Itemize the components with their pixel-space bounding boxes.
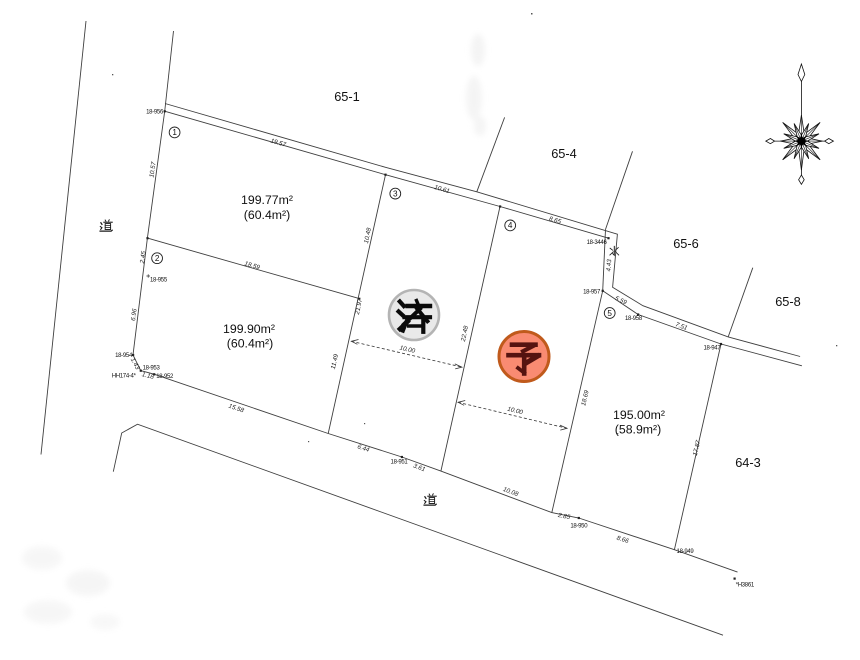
svg-text:(58.9m²): (58.9m²): [615, 423, 661, 437]
svg-text:18-956: 18-956: [146, 110, 164, 116]
svg-text:199.77m²: 199.77m²: [241, 193, 293, 207]
svg-text:4: 4: [508, 221, 513, 230]
svg-text:65-1: 65-1: [334, 89, 360, 104]
svg-text:1: 1: [172, 128, 177, 137]
svg-text:199.90m²: 199.90m²: [223, 322, 275, 336]
svg-text:18-951: 18-951: [391, 460, 409, 466]
svg-text:(60.4m²): (60.4m²): [244, 208, 290, 222]
svg-text:3: 3: [393, 189, 398, 198]
svg-text:65-8: 65-8: [775, 294, 801, 309]
svg-text:HH174-4*: HH174-4*: [112, 373, 137, 379]
svg-text:5: 5: [607, 309, 612, 318]
svg-text:2: 2: [155, 254, 160, 263]
svg-text:18-952: 18-952: [156, 374, 174, 380]
svg-text:(60.4m²): (60.4m²): [227, 337, 273, 351]
svg-text:18-954: 18-954: [115, 353, 133, 359]
svg-text:64-3: 64-3: [735, 455, 761, 470]
svg-text:18-3446: 18-3446: [587, 240, 608, 246]
svg-text:4.43: 4.43: [605, 259, 613, 272]
svg-text:65-6: 65-6: [673, 236, 699, 251]
svg-text:18-955: 18-955: [150, 278, 168, 284]
svg-text:18-958: 18-958: [625, 316, 643, 322]
svg-text:195.00m²: 195.00m²: [613, 408, 665, 422]
svg-text:*H3861: *H3861: [736, 583, 755, 589]
svg-text:18-947: 18-947: [704, 346, 722, 352]
svg-text:65-4: 65-4: [551, 146, 577, 161]
svg-text:18-953: 18-953: [143, 366, 161, 372]
svg-text:18-957: 18-957: [583, 290, 601, 296]
svg-text:18-950: 18-950: [570, 524, 588, 530]
svg-text:18-949: 18-949: [677, 549, 695, 555]
